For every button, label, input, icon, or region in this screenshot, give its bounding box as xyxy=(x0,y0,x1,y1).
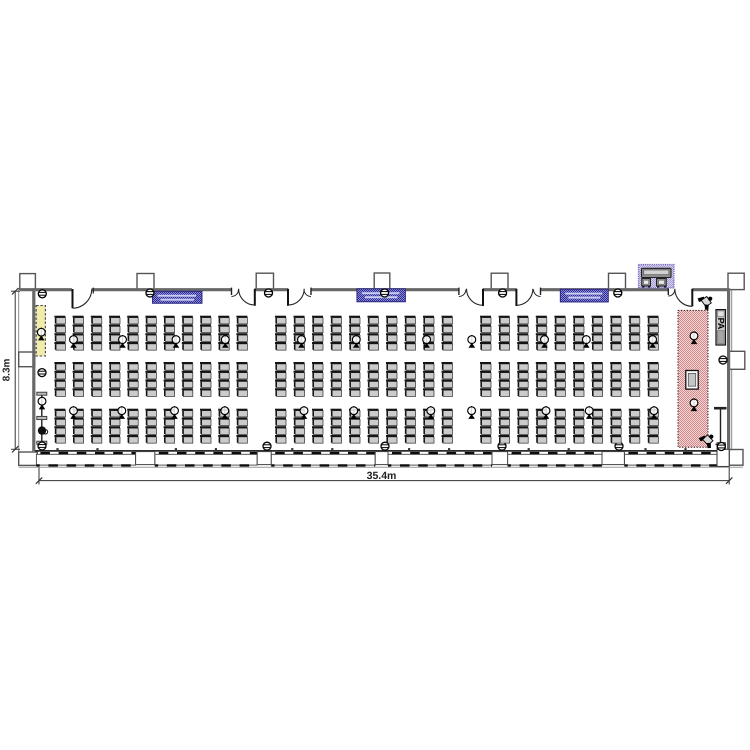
svg-text:PA: PA xyxy=(716,318,726,330)
svg-text:35.4m: 35.4m xyxy=(367,470,397,482)
svg-text:8.3m: 8.3m xyxy=(2,358,13,381)
